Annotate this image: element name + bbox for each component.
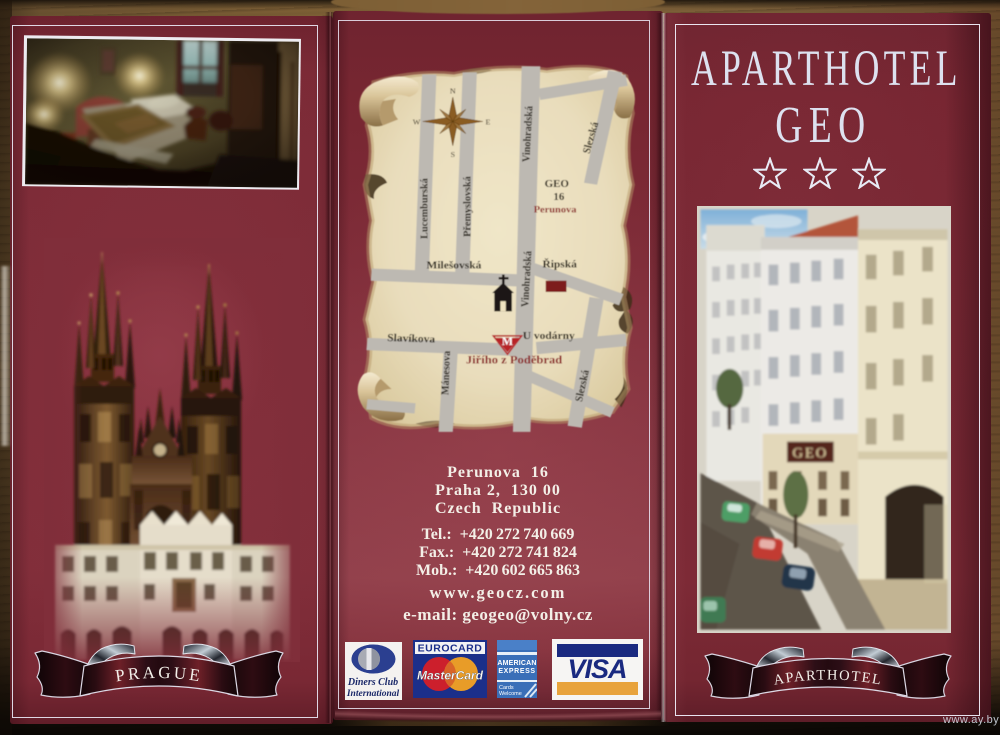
- svg-text:Jiřího z Poděbrad: Jiřího z Poděbrad: [466, 353, 563, 367]
- svg-text:W: W: [413, 117, 421, 126]
- svg-text:International: International: [346, 689, 400, 699]
- svg-text:Přemyslovská: Přemyslovská: [462, 176, 473, 237]
- svg-text:Slavíkova: Slavíkova: [387, 332, 436, 345]
- svg-text:E: E: [486, 117, 491, 126]
- svg-text:AMERICAN: AMERICAN: [497, 660, 536, 667]
- svg-text:16: 16: [553, 192, 564, 203]
- svg-text:EUROCARD: EUROCARD: [418, 643, 483, 655]
- svg-text:N: N: [450, 86, 456, 95]
- svg-text:EXPRESS: EXPRESS: [498, 668, 535, 675]
- svg-text:Řipská: Řipská: [542, 259, 577, 271]
- svg-text:Welcome: Welcome: [499, 691, 522, 697]
- svg-text:M: M: [502, 335, 513, 348]
- svg-text:Perunova: Perunova: [534, 205, 577, 216]
- svg-text:Lucemburská: Lucemburská: [419, 178, 430, 239]
- svg-text:VISA: VISA: [567, 654, 626, 684]
- svg-text:S: S: [451, 150, 455, 159]
- svg-text:Milešovská: Milešovská: [427, 260, 482, 272]
- svg-text:U vodárny: U vodárny: [523, 330, 575, 342]
- svg-text:GEO: GEO: [545, 179, 569, 190]
- svg-text:Mánesova: Mánesova: [440, 350, 453, 395]
- svg-text:Diners Club: Diners Club: [347, 677, 398, 688]
- svg-text:MasterCard: MasterCard: [417, 669, 484, 683]
- svg-text:GEO: GEO: [792, 445, 828, 461]
